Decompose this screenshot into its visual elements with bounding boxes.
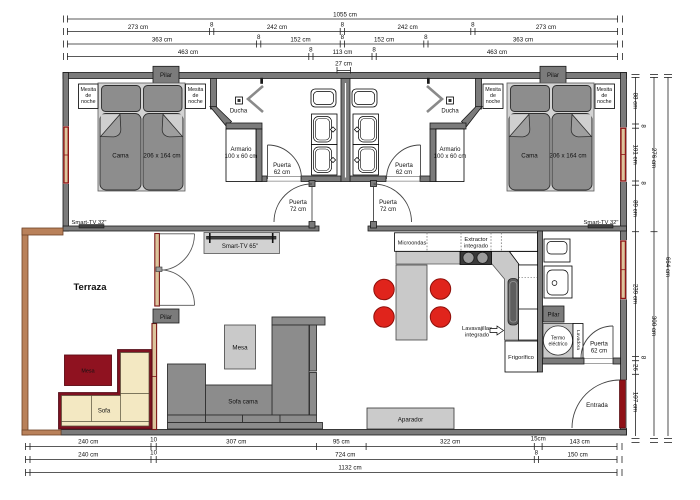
svg-text:10: 10 [150, 437, 157, 444]
svg-text:Puerta: Puerta [590, 342, 608, 348]
svg-text:noche: noche [597, 99, 611, 105]
svg-text:Pilar: Pilar [160, 73, 172, 79]
svg-text:8: 8 [210, 22, 214, 29]
svg-text:Puerta: Puerta [273, 163, 291, 169]
svg-text:152 cm: 152 cm [290, 37, 310, 44]
svg-text:Ducha: Ducha [230, 109, 248, 115]
svg-text:Sofa cama: Sofa cama [228, 399, 258, 406]
svg-text:27 cm: 27 cm [335, 61, 352, 68]
svg-text:240 cm: 240 cm [78, 452, 98, 459]
svg-text:8: 8 [309, 47, 313, 54]
svg-text:724 cm: 724 cm [335, 452, 355, 459]
svg-text:101 cm: 101 cm [632, 144, 639, 164]
svg-text:Lavadora: Lavadora [575, 330, 581, 350]
svg-text:8: 8 [372, 47, 376, 54]
svg-text:8: 8 [424, 34, 428, 41]
svg-text:Aparador: Aparador [398, 417, 423, 424]
svg-text:72 cm: 72 cm [380, 207, 396, 213]
svg-text:113 cm: 113 cm [333, 49, 353, 56]
svg-text:363 cm: 363 cm [513, 37, 533, 44]
svg-text:62 cm: 62 cm [274, 170, 290, 176]
svg-text:62 cm: 62 cm [591, 349, 607, 355]
svg-text:62 cm: 62 cm [396, 170, 412, 176]
svg-text:15cm: 15cm [531, 436, 546, 443]
svg-text:143 cm: 143 cm [569, 439, 589, 446]
svg-text:noche: noche [188, 99, 202, 105]
svg-text:Ducha: Ducha [441, 109, 459, 115]
svg-text:Armario: Armario [439, 147, 461, 153]
svg-text:307 cm: 307 cm [226, 439, 246, 446]
svg-text:Smart-TV 65": Smart-TV 65" [222, 244, 258, 250]
svg-text:95 cm: 95 cm [333, 439, 350, 446]
svg-text:463 cm: 463 cm [487, 49, 507, 56]
svg-text:Puerta: Puerta [289, 200, 307, 206]
svg-text:eléctrico: eléctrico [549, 342, 568, 348]
svg-text:noche: noche [486, 99, 500, 105]
svg-text:Lavavajillas: Lavavajillas [462, 326, 492, 332]
svg-text:Entrada: Entrada [586, 402, 608, 409]
svg-text:Frigorífico: Frigorífico [508, 355, 534, 361]
svg-text:8: 8 [640, 124, 647, 128]
svg-text:integrado: integrado [465, 333, 489, 339]
svg-text:72 cm: 72 cm [290, 207, 306, 213]
svg-text:Pilar: Pilar [547, 73, 559, 79]
svg-text:100 x 60 cm: 100 x 60 cm [225, 154, 258, 160]
svg-text:242 cm: 242 cm [397, 24, 417, 31]
svg-text:8: 8 [257, 34, 261, 41]
svg-text:Puerta: Puerta [395, 163, 413, 169]
svg-text:322 cm: 322 cm [440, 439, 460, 446]
svg-text:noche: noche [81, 99, 95, 105]
svg-text:Mesa: Mesa [81, 369, 94, 375]
svg-text:107 cm: 107 cm [632, 392, 639, 412]
svg-text:300 cm: 300 cm [650, 316, 657, 336]
svg-text:664 cm: 664 cm [664, 257, 671, 277]
svg-text:26: 26 [632, 364, 639, 371]
svg-text:88 cm: 88 cm [632, 93, 639, 110]
svg-text:Armario: Armario [230, 147, 252, 153]
svg-text:10: 10 [150, 450, 157, 457]
svg-text:276 cm: 276 cm [650, 148, 657, 168]
svg-text:100 x 60 cm: 100 x 60 cm [434, 154, 467, 160]
svg-text:Sofa: Sofa [98, 409, 111, 415]
svg-text:150 cm: 150 cm [568, 452, 588, 459]
svg-text:242 cm: 242 cm [267, 24, 287, 31]
svg-text:273 cm: 273 cm [128, 24, 148, 31]
svg-text:8: 8 [341, 22, 345, 29]
svg-text:8: 8 [640, 356, 647, 360]
svg-text:463 cm: 463 cm [178, 49, 198, 56]
svg-text:Puerta: Puerta [379, 200, 397, 206]
svg-text:Pilar: Pilar [547, 313, 559, 319]
svg-text:1132 cm: 1132 cm [338, 465, 361, 472]
svg-text:Extractor: Extractor [464, 237, 487, 243]
svg-text:Terraza: Terraza [73, 282, 107, 293]
svg-text:integrado: integrado [464, 244, 488, 250]
svg-text:152 cm: 152 cm [374, 37, 394, 44]
svg-text:Microondas: Microondas [398, 241, 427, 247]
svg-text:Pilar: Pilar [160, 315, 172, 321]
svg-text:8: 8 [640, 181, 647, 185]
svg-text:89 cm: 89 cm [632, 200, 639, 217]
svg-text:206 x 164 cm: 206 x 164 cm [549, 153, 586, 160]
svg-text:8: 8 [471, 22, 475, 29]
svg-text:8: 8 [341, 34, 345, 41]
svg-text:239 cm: 239 cm [632, 284, 639, 304]
svg-text:363 cm: 363 cm [152, 37, 172, 44]
svg-text:8: 8 [535, 450, 539, 457]
svg-text:Cama: Cama [521, 153, 538, 160]
svg-text:Mesa: Mesa [232, 345, 248, 352]
svg-text:Cama: Cama [112, 153, 129, 160]
svg-text:240 cm: 240 cm [78, 439, 98, 446]
svg-text:206 x 164 cm: 206 x 164 cm [143, 153, 180, 160]
svg-text:273 cm: 273 cm [536, 24, 556, 31]
svg-text:1055 cm: 1055 cm [333, 12, 357, 19]
